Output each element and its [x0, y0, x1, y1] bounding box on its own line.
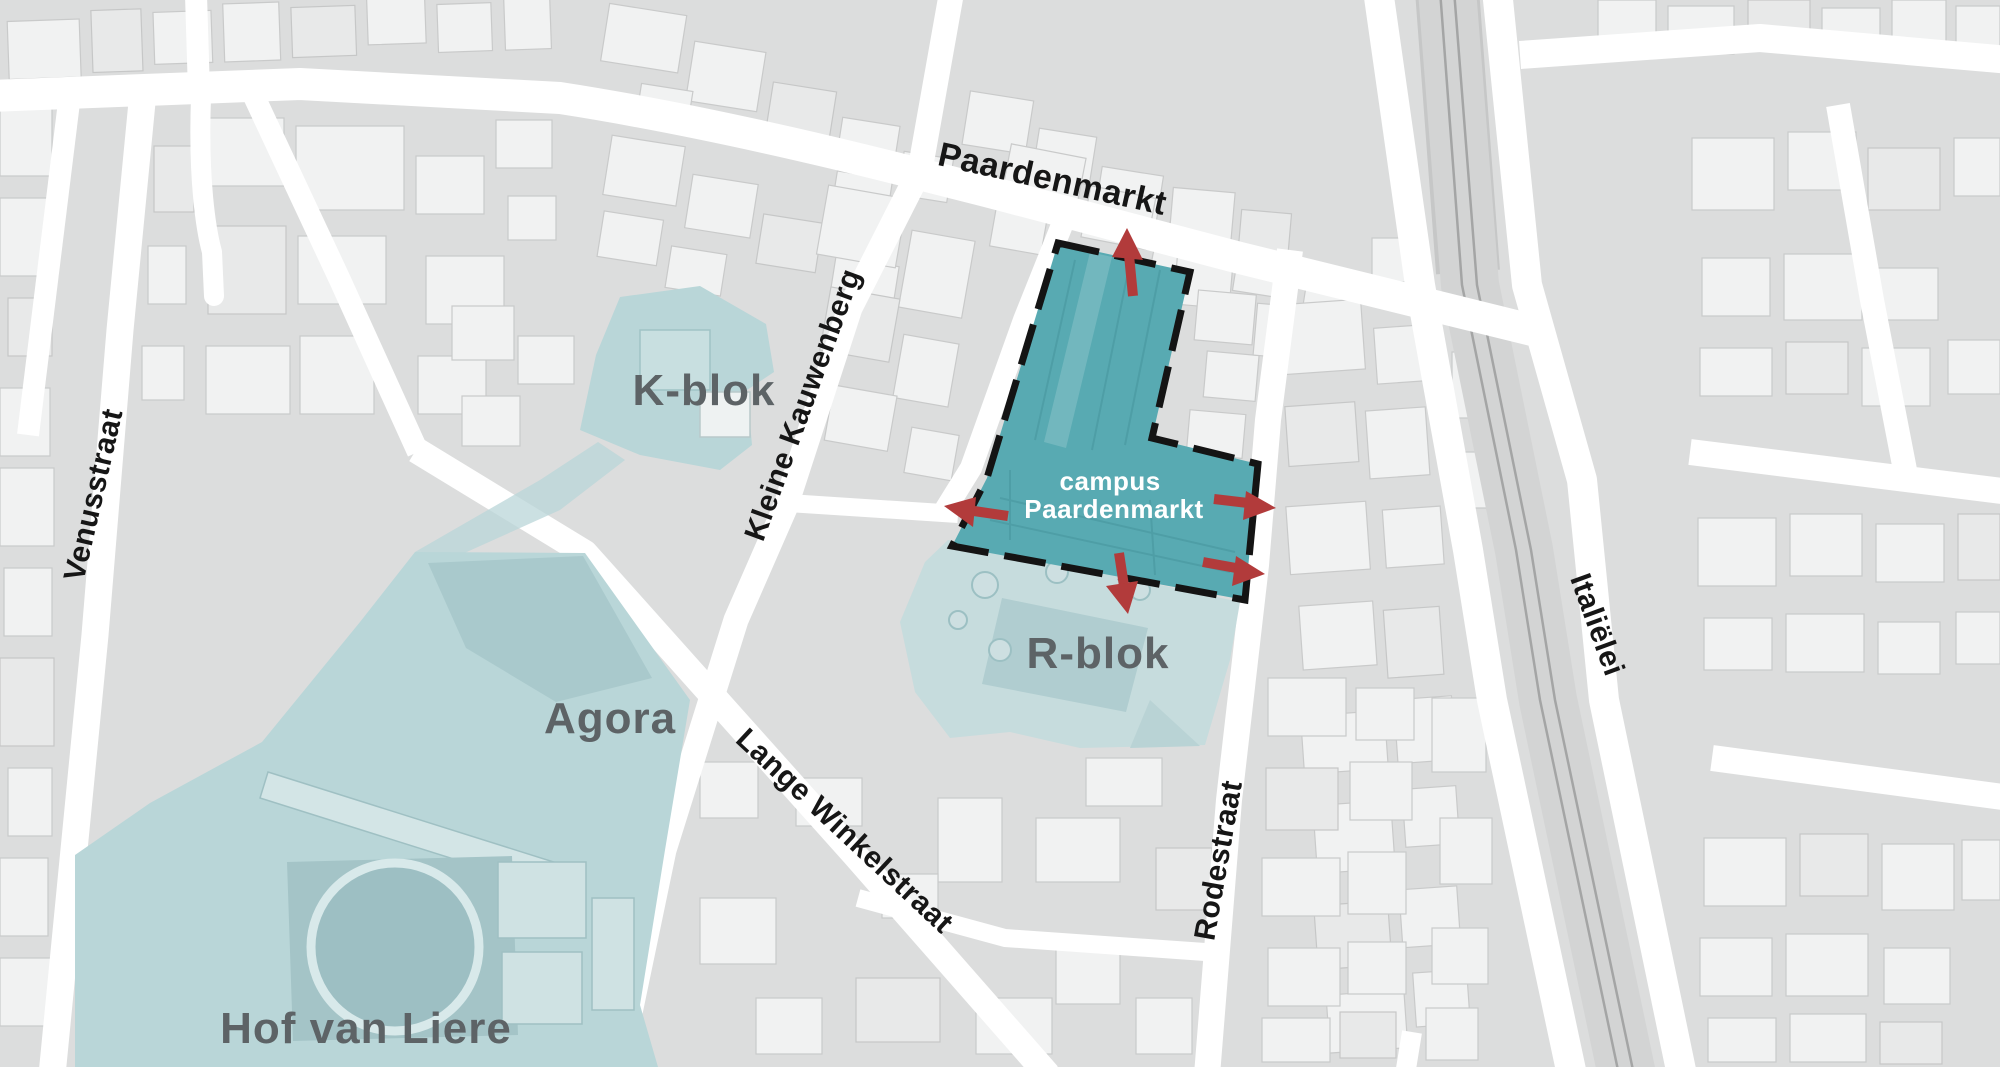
campus-label-line2: Paardenmarkt [1024, 494, 1203, 524]
area-label-agora: Agora [544, 694, 676, 743]
city-map: Paardenmarkt Kleine Kauwenberg Venusstra… [0, 0, 2000, 1067]
area-label-k-blok: K-blok [633, 366, 776, 415]
campus-label-line1: campus [1060, 466, 1161, 496]
map-canvas: Paardenmarkt Kleine Kauwenberg Venusstra… [0, 0, 2000, 1067]
area-label-hof-van-liere: Hof van Liere [220, 1004, 512, 1053]
area-label-r-blok: R-blok [1027, 629, 1170, 678]
